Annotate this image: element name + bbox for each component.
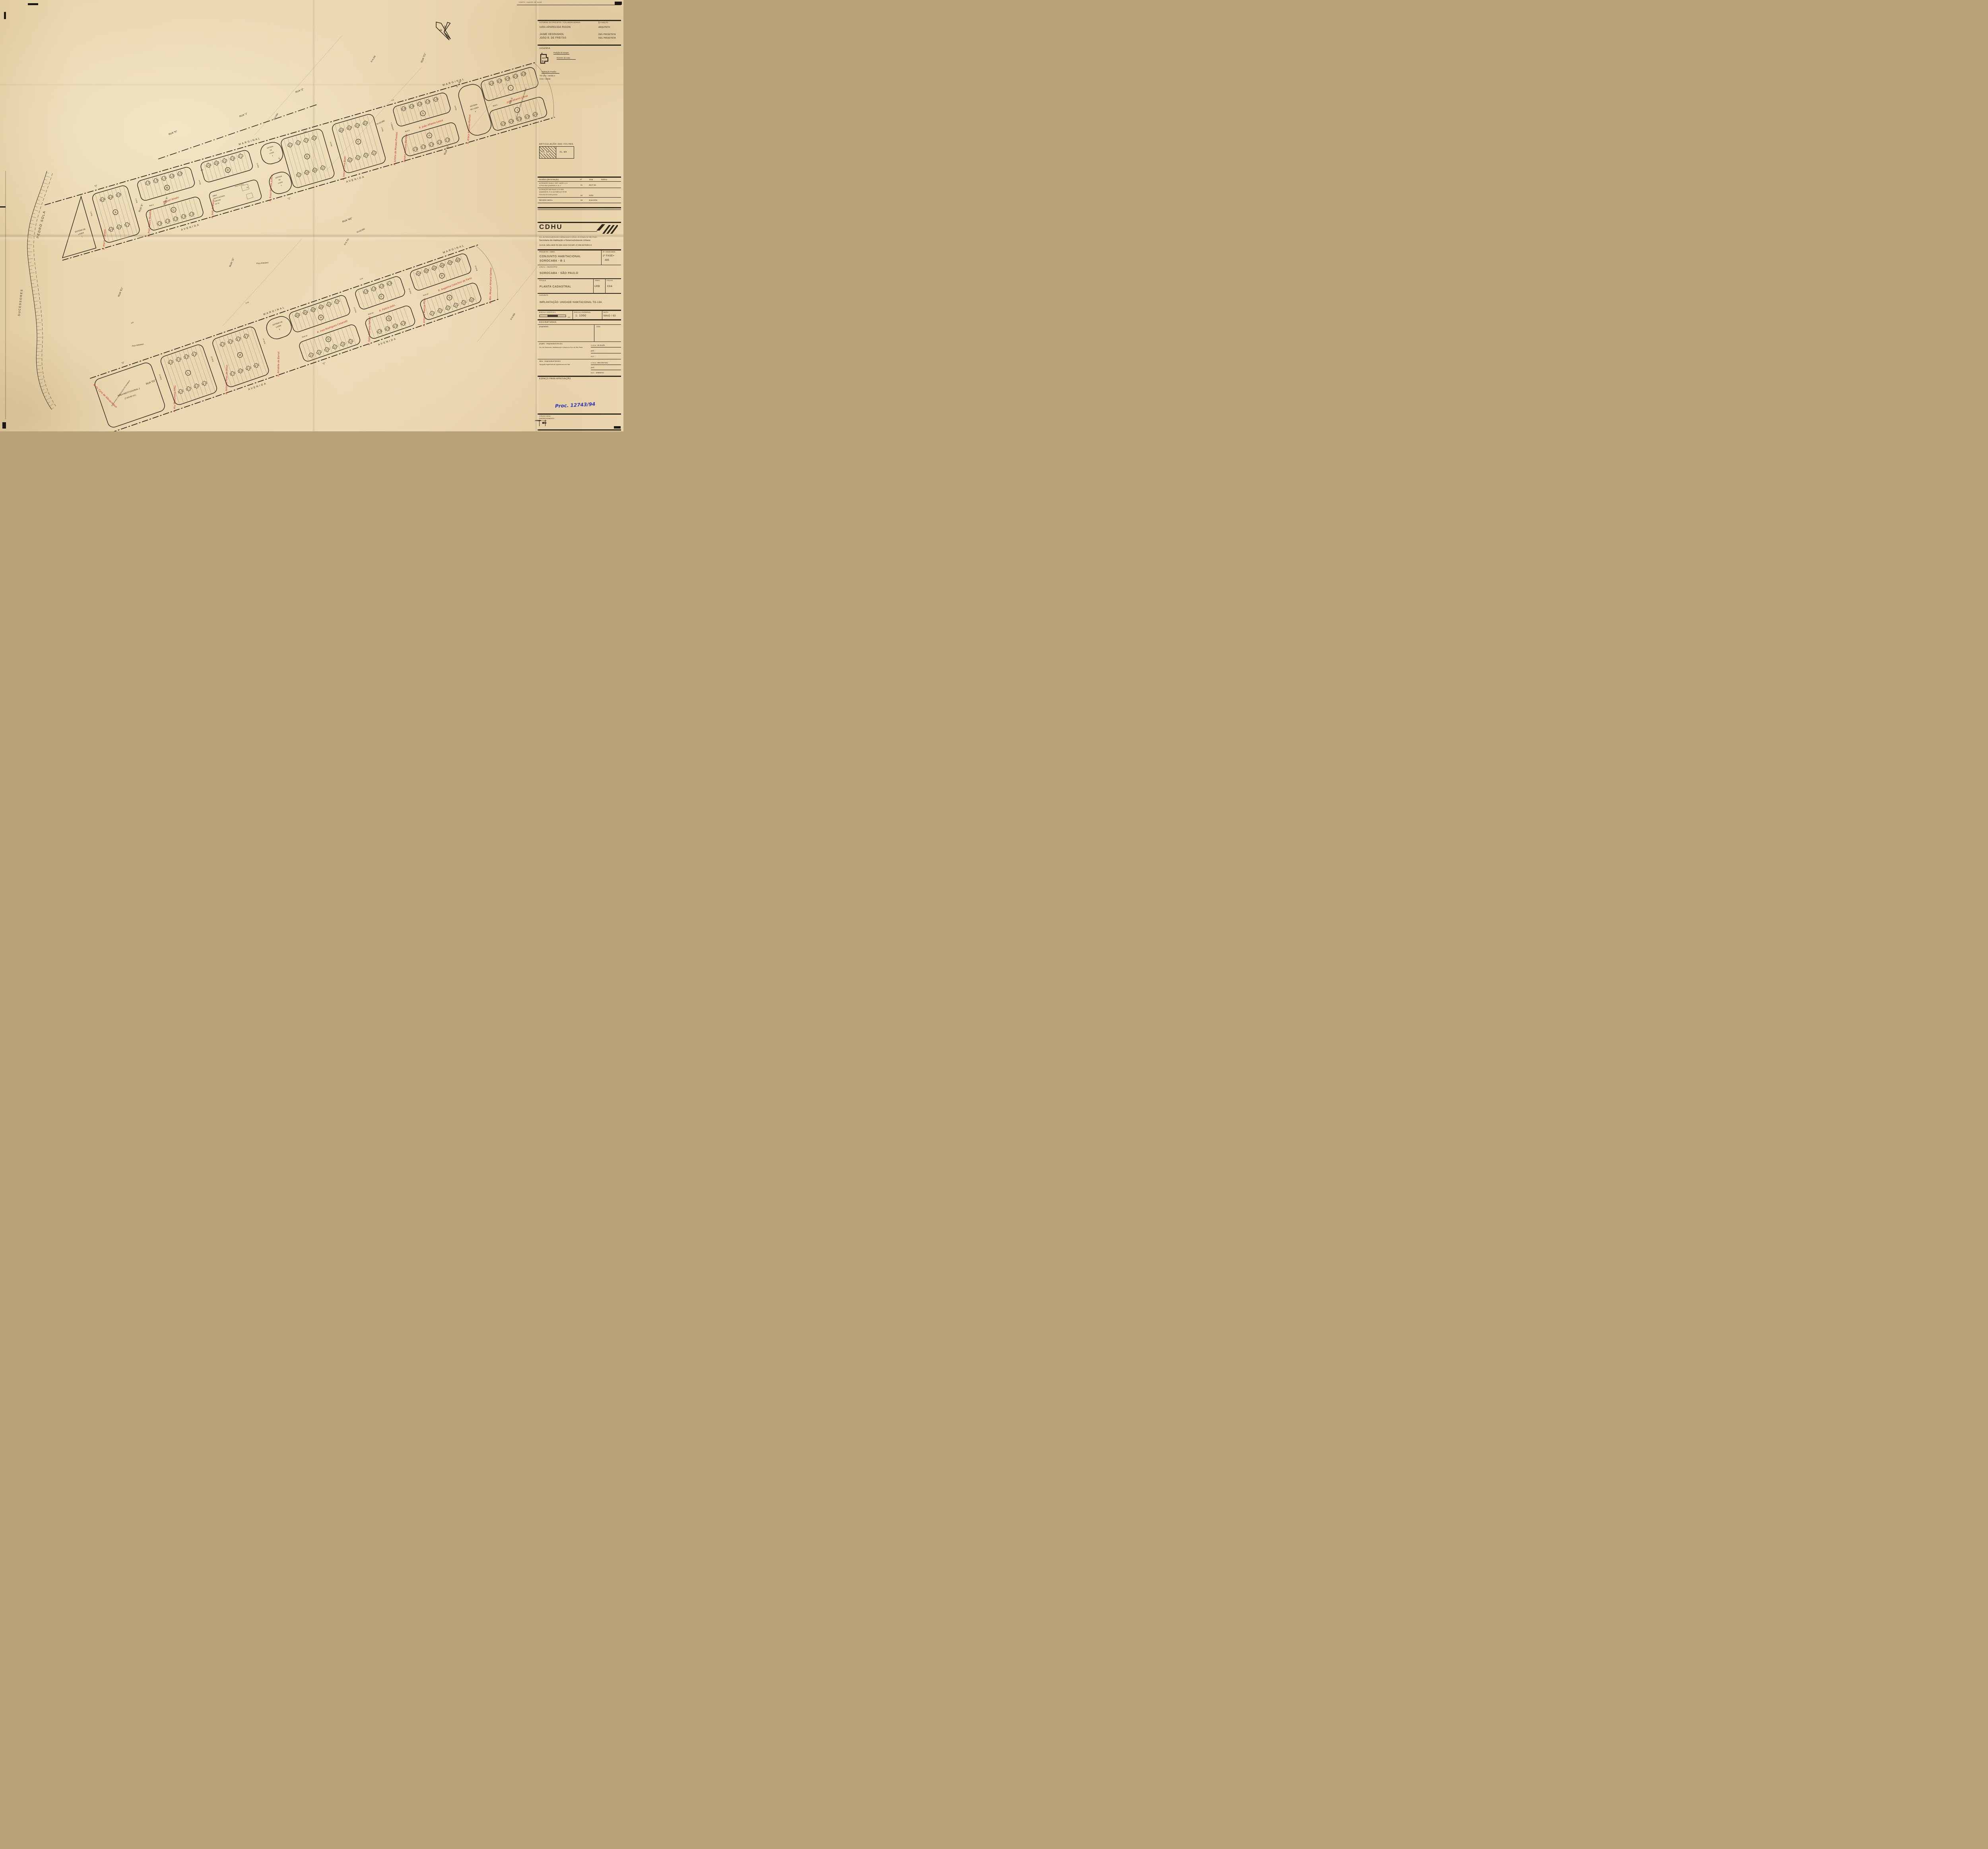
svg-text:SISTEMA: SISTEMA xyxy=(275,175,282,179)
svg-text:72: 72 xyxy=(177,359,179,361)
svg-text:14: 14 xyxy=(309,355,311,357)
svg-text:86: 86 xyxy=(169,362,171,364)
marginal-quote: "2" xyxy=(121,362,125,365)
street-label: RUA 1 xyxy=(89,211,93,216)
svg-text:80: 80 xyxy=(247,186,248,188)
street-label-avenida: AVENIDA xyxy=(181,223,200,231)
svg-text:44: 44 xyxy=(174,218,176,220)
svg-text:LAZER: LAZER xyxy=(78,232,84,235)
map-annotation: RUA "B1" xyxy=(444,145,450,155)
svg-text:58: 58 xyxy=(454,305,456,307)
svg-text:53: 53 xyxy=(203,383,205,385)
svg-text:74: 74 xyxy=(190,213,192,215)
creek-boundary xyxy=(27,171,52,409)
street-label: RUA 16 xyxy=(302,334,308,338)
map-annotation: N=15.000 xyxy=(376,120,385,125)
svg-text:72: 72 xyxy=(341,343,343,345)
svg-text:42: 42 xyxy=(192,353,194,355)
street-name-red: R. Julieta de Moraes Prestes xyxy=(393,132,398,165)
svg-text:(7.610,50 m2.): (7.610,50 m2.) xyxy=(124,394,136,400)
map-annotation: 5,00 xyxy=(391,99,394,101)
svg-text:SISTEMA DE: SISTEMA DE xyxy=(272,321,283,326)
svg-text:60: 60 xyxy=(438,142,440,144)
street-label: RUA 4 xyxy=(198,180,201,185)
svg-text:44: 44 xyxy=(325,349,327,351)
map-annotation: Poço Artesiano xyxy=(132,343,144,347)
map-annotation: RUA "C1" xyxy=(421,52,427,63)
svg-text:1: 1 xyxy=(81,235,83,238)
marginal-quote: "1" xyxy=(322,362,326,365)
svg-text:82: 82 xyxy=(221,344,223,346)
svg-text:4: 4 xyxy=(475,111,476,113)
svg-text:28: 28 xyxy=(166,221,168,223)
svg-text:88: 88 xyxy=(162,178,164,180)
street-label: RUA 21 xyxy=(474,265,478,271)
street-label: RUA 14 xyxy=(262,338,266,344)
street-name-red: R. Amabile de Barral. xyxy=(277,351,280,376)
svg-text:LAZER: LAZER xyxy=(278,181,283,184)
svg-text:86: 86 xyxy=(349,341,351,343)
svg-text:83: 83 xyxy=(231,158,233,160)
street-label: RUA 12 xyxy=(158,374,162,380)
street-label-marginal: MARGINAL xyxy=(443,78,466,87)
svg-text:44: 44 xyxy=(446,307,448,309)
svg-text:26: 26 xyxy=(179,391,181,393)
map-annotation: E=5.200 xyxy=(371,55,377,63)
registration-mark xyxy=(0,206,6,208)
map-annotation: SUCESSORES xyxy=(18,289,23,316)
svg-text:DE: DE xyxy=(278,178,281,181)
scanned-sheet: MARGINALMARGINALAVENIDAAVENIDA"2""1"SIST… xyxy=(0,0,623,431)
map-annotation: RUA "M1" xyxy=(342,217,353,223)
street-label: RUA 6 xyxy=(329,142,332,147)
street-label: RUA 8 xyxy=(405,129,410,132)
map-annotation: 10,00 xyxy=(245,301,249,304)
map-annotation: N=10.000 xyxy=(356,228,365,233)
svg-text:30: 30 xyxy=(438,310,440,312)
street-label: RUA 17 xyxy=(353,307,357,312)
map-annotation: RUA "D1" xyxy=(146,380,156,386)
site-plan-map: MARGINALMARGINALAVENIDAAVENIDA"2""1"SIST… xyxy=(0,0,623,431)
svg-text:28: 28 xyxy=(317,352,319,354)
svg-text:LAZER: LAZER xyxy=(276,324,282,328)
svg-text:58: 58 xyxy=(333,346,335,348)
svg-text:16: 16 xyxy=(414,149,415,151)
map-annotation: RUA "E" xyxy=(138,204,144,213)
street-label: RUA 19 xyxy=(408,288,412,294)
svg-text:5: 5 xyxy=(279,328,280,331)
svg-text:22: 22 xyxy=(231,373,233,375)
map-annotation: RUA "N" xyxy=(169,130,178,136)
svg-text:DE: DE xyxy=(270,149,272,151)
svg-text:99: 99 xyxy=(239,155,241,157)
svg-text:52: 52 xyxy=(237,338,239,340)
street-label: RUA 9 xyxy=(454,105,457,111)
street-label: RUA 3 xyxy=(149,204,154,207)
street-name-red: R. Antonio Marcos Poso. xyxy=(423,297,426,326)
registration-mark xyxy=(615,2,622,5)
svg-text:2: 2 xyxy=(272,155,273,157)
street-label: RUA 8 xyxy=(493,104,498,107)
housing-strip-top: MARGINALMARGINALAVENIDAAVENIDA"2""1"SIST… xyxy=(43,55,561,266)
street-name-red: R. Dr. Cyro de Albuquerque xyxy=(93,384,118,409)
street-name-red: R. Izaura Lima Bozo. xyxy=(342,155,347,180)
street-label-avenida: AVENIDA xyxy=(248,382,268,391)
street-label: RUA 7 xyxy=(381,126,384,132)
map-annotation: 12,00 xyxy=(359,277,363,280)
svg-text:57: 57 xyxy=(335,301,337,303)
svg-text:68: 68 xyxy=(229,341,231,343)
map-annotation: Poço Artesiano xyxy=(256,262,269,264)
svg-text:3: 3 xyxy=(280,184,282,186)
street-name-red: R. Min. Moacyr Amaral Santos xyxy=(489,268,493,303)
map-annotation: 5,00 xyxy=(200,169,204,171)
street-label-marginal: MARGINAL xyxy=(443,244,465,254)
street-label-marginal: MARGINAL xyxy=(239,137,262,146)
registration-mark xyxy=(2,422,6,429)
map-annotation: RUA "J" xyxy=(239,113,248,118)
svg-text:146: 146 xyxy=(348,159,350,161)
street-name-red: R. Ines Rodrigues Cesarotti xyxy=(317,320,348,334)
svg-text:32: 32 xyxy=(421,146,423,148)
housing-strip-bottom: MARGINALMARGINALAVENIDAAVENIDA"2""1"ÁREA… xyxy=(88,238,505,431)
street-name-red: R. Rosa Martins Judice xyxy=(269,175,273,201)
map-annotation: E=5.700 xyxy=(344,238,350,246)
svg-text:14: 14 xyxy=(430,313,432,315)
map-annotation: RUA "E1" xyxy=(118,287,124,297)
map-annotation: 30,00 xyxy=(278,157,281,161)
street-name-red: R. Felício João. xyxy=(379,304,396,312)
registration-mark xyxy=(28,3,38,5)
street-label: AVENIDA 1 xyxy=(390,122,394,131)
property-boundary xyxy=(158,104,318,159)
svg-text:38: 38 xyxy=(245,336,247,338)
street-label: RUA 2 xyxy=(135,198,138,203)
registration-mark xyxy=(4,12,6,19)
svg-text:74: 74 xyxy=(462,302,464,304)
svg-text:14: 14 xyxy=(158,223,160,225)
street-label-avenida: AVENIDA xyxy=(378,338,397,347)
svg-text:85: 85 xyxy=(125,224,127,226)
svg-text:SISTEMA DE: SISTEMA DE xyxy=(75,228,86,233)
map-annotation: RUA "J1" xyxy=(229,258,235,268)
street-label: RUA 18 xyxy=(368,312,374,315)
svg-text:CP 1A: CP 1A xyxy=(215,202,220,205)
street-label: RUA 20 xyxy=(423,293,429,296)
svg-text:46: 46 xyxy=(429,144,431,146)
street-label: RUA 5 xyxy=(256,163,259,168)
svg-text:72: 72 xyxy=(154,180,156,182)
street-name-red: R. Odila Mariano Sandei xyxy=(368,316,371,345)
svg-text:83: 83 xyxy=(187,388,189,390)
marginal-quote: "2" xyxy=(94,185,98,188)
svg-text:LAZER: LAZER xyxy=(269,151,275,154)
map-annotation: PEDRO SOLA xyxy=(36,210,46,239)
svg-text:74: 74 xyxy=(446,139,448,141)
street-label-avenida: AVENIDA xyxy=(346,175,365,183)
north-compass-icon xyxy=(434,16,458,41)
svg-text:69: 69 xyxy=(223,160,225,162)
map-annotation: 8,00 xyxy=(131,322,134,324)
registration-mark xyxy=(614,426,621,429)
svg-text:SISTEMA: SISTEMA xyxy=(266,145,274,149)
street-label-marginal: MARGINAL xyxy=(263,306,285,316)
map-annotation: E=4.800 xyxy=(273,113,279,120)
street-name-red: R. João Afranio Lessa xyxy=(419,119,443,129)
street-label: RUA 13 xyxy=(210,356,214,362)
svg-text:56: 56 xyxy=(184,356,186,358)
svg-text:58: 58 xyxy=(182,216,184,218)
svg-text:58: 58 xyxy=(146,182,148,184)
map-annotation: RUA "Z" xyxy=(295,88,305,94)
marginal-quote: "1" xyxy=(287,198,291,201)
svg-text:69: 69 xyxy=(195,386,197,388)
map-annotation: E=5.900 xyxy=(510,313,516,320)
